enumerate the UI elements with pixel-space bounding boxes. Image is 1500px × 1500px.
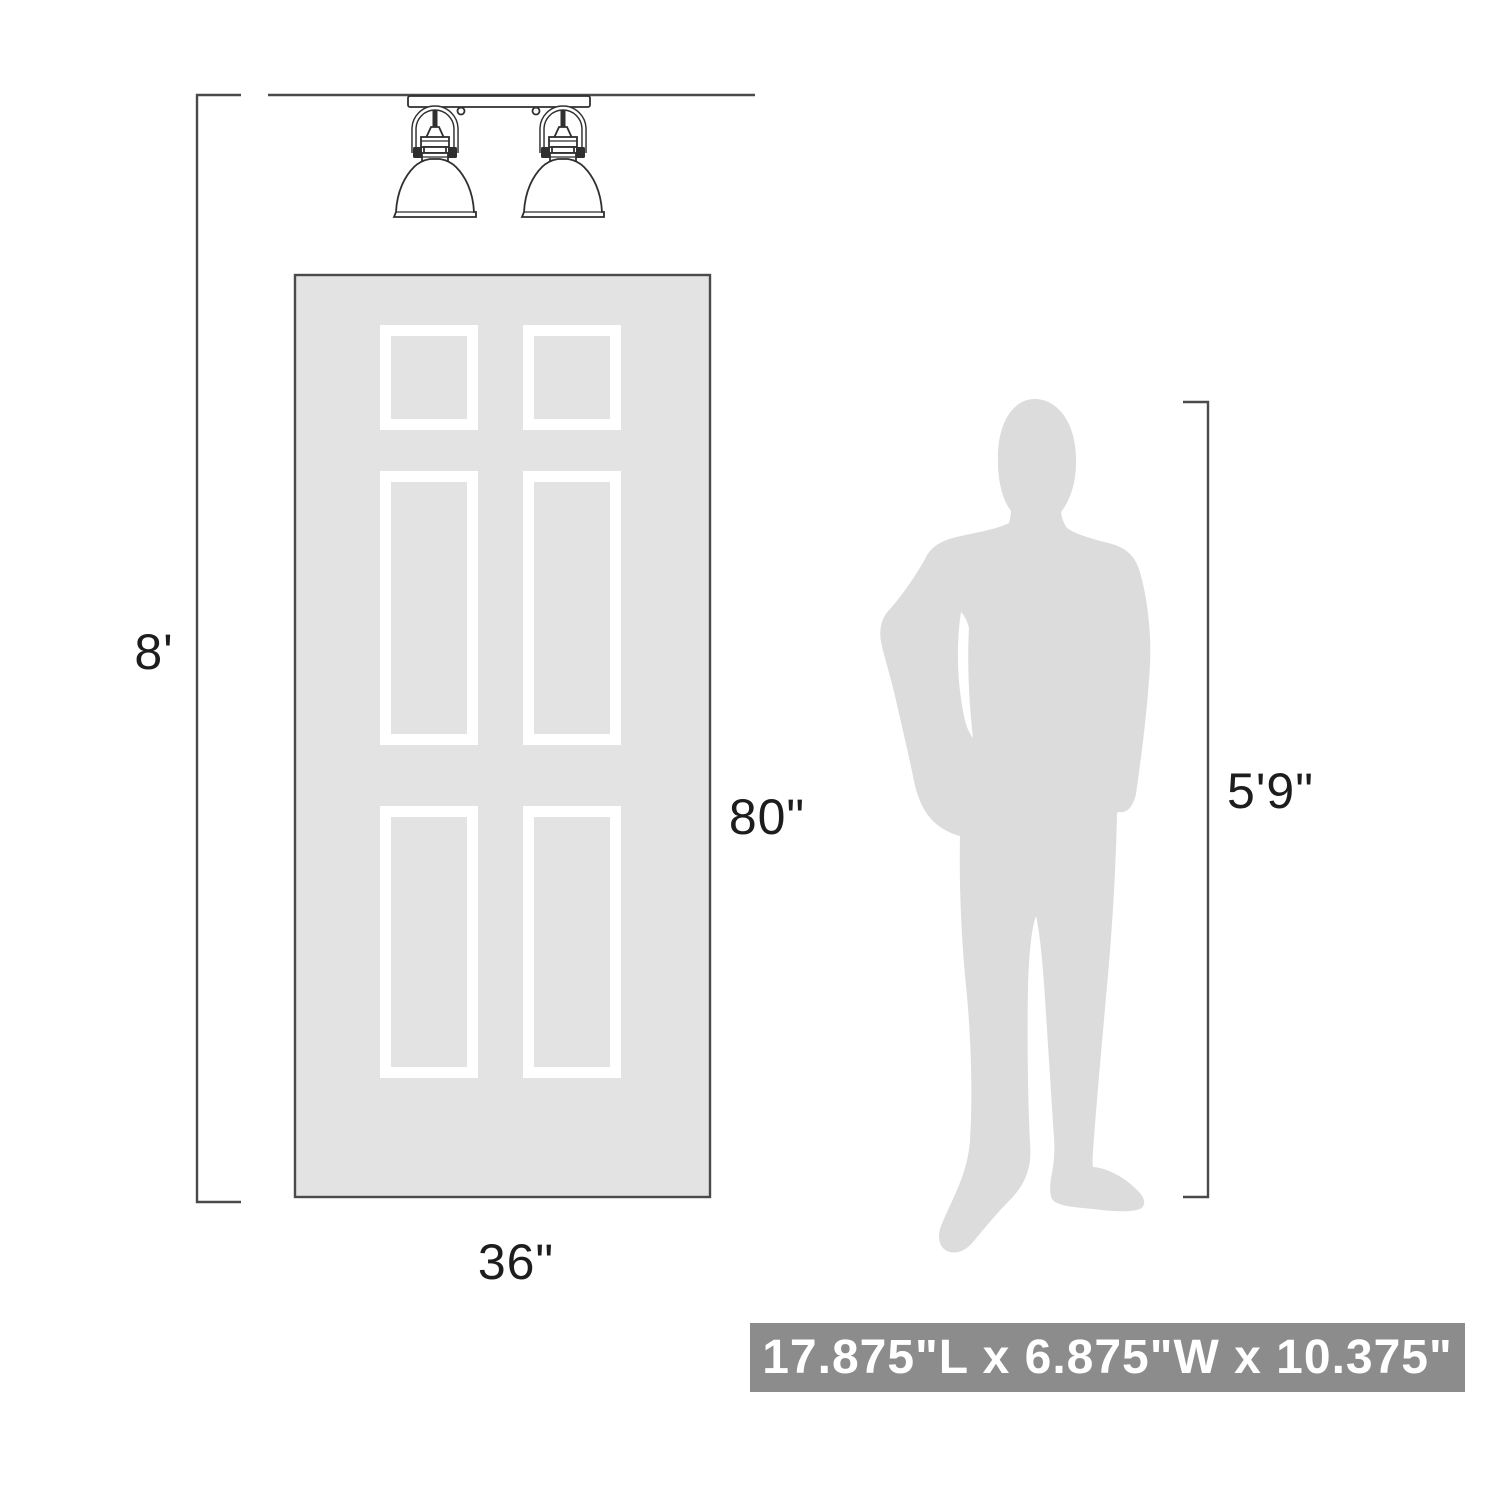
door-panel-inset — [534, 817, 610, 1067]
ceiling-light-fixture-illustration — [394, 96, 604, 217]
product-scale-diagram: 8' 80" 36" 5'9" 17.875"L x 6.875"W x 10.… — [0, 0, 1500, 1500]
fixture-lamp-left — [394, 107, 476, 217]
person-height-label: 5'9" — [1188, 766, 1353, 816]
ceiling-height-label: 8' — [104, 627, 204, 677]
person-silhouette — [880, 399, 1150, 1253]
fixture-lamp-right — [522, 107, 604, 217]
door-panel-inset — [391, 817, 467, 1067]
door-illustration — [295, 275, 710, 1197]
door-panel-inset — [391, 482, 467, 734]
door-panel-inset — [534, 336, 610, 419]
door-slab — [295, 275, 710, 1197]
diagram-graphics — [0, 0, 1500, 1500]
door-height-label: 80" — [702, 792, 832, 842]
door-width-label: 36" — [451, 1237, 581, 1287]
door-panel-inset — [534, 482, 610, 734]
fixture-screw — [533, 108, 540, 115]
door-panel-inset — [391, 336, 467, 419]
fixture-screw — [458, 108, 465, 115]
fixture-dimensions-bar: 17.875"L x 6.875"W x 10.375" — [750, 1323, 1465, 1392]
